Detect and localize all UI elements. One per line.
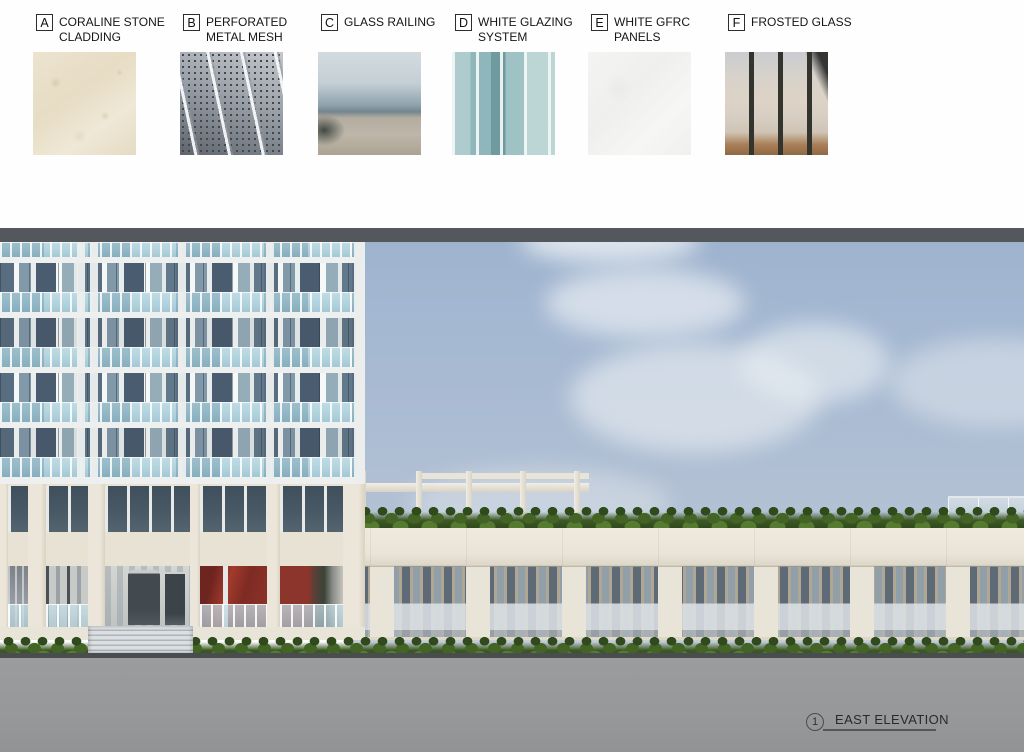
material-name: PERFORATED METAL MESH (206, 15, 302, 44)
material-swatch-b (180, 52, 283, 155)
material-name: WHITE GFRC PANELS (614, 15, 700, 44)
title-underline (823, 729, 936, 731)
mannequin-silhouette (165, 572, 185, 625)
view-number-bubble: 1 (806, 713, 824, 731)
cloud (890, 338, 1024, 428)
view-title-block: 1 EAST ELEVATION (806, 710, 966, 736)
pergola-beam (418, 473, 589, 479)
stone-pier (0, 484, 8, 640)
material-swatch-f (725, 52, 828, 155)
clerestory-glazing (280, 486, 343, 532)
material-name: WHITE GLAZING SYSTEM (478, 15, 584, 44)
perforated-mesh-bays (357, 566, 1024, 637)
stone-parapet (357, 528, 1024, 566)
tower-corner-pier (356, 242, 365, 487)
tower-piers (0, 242, 365, 487)
clerestory-glazing (105, 486, 190, 532)
storefront-screen-band (8, 604, 28, 629)
entry-glazing (105, 566, 190, 627)
stone-pier (28, 484, 46, 640)
clerestory-glazing (200, 486, 267, 532)
material-name: FROSTED GLASS (751, 15, 881, 30)
material-swatch-a (33, 52, 136, 155)
tower-facade (0, 242, 365, 487)
entry-steps (88, 626, 193, 653)
material-swatch-c (318, 52, 421, 155)
cloud (545, 268, 745, 338)
stone-pier (88, 484, 105, 640)
material-key-tag: E (591, 14, 608, 31)
image-top-edge-band (0, 228, 1024, 242)
east-elevation-rendering (0, 228, 1024, 752)
roof-planting (357, 504, 1024, 530)
view-title: EAST ELEVATION (835, 712, 949, 727)
material-swatch-d (452, 52, 555, 155)
elevation-sheet: ACORALINE STONE CLADDINGBPERFORATED META… (0, 0, 1024, 752)
mannequin-silhouette (128, 570, 160, 625)
material-key-tag: C (321, 14, 338, 31)
material-name: CORALINE STONE CLADDING (59, 15, 171, 44)
stone-pier (190, 484, 200, 640)
stone-pier (343, 484, 365, 640)
material-key-tag: B (183, 14, 200, 31)
material-key-tag: D (455, 14, 472, 31)
material-swatch-e (588, 52, 691, 155)
pergola-beam (359, 483, 589, 492)
material-key-tag: A (36, 14, 53, 31)
clerestory-glazing (46, 486, 88, 532)
cloud (740, 323, 890, 403)
stone-pier (267, 484, 280, 640)
material-key-tag: F (728, 14, 745, 31)
storefront-screen-band (200, 604, 267, 629)
storefront-screen-band (280, 604, 343, 629)
materials-legend: ACORALINE STONE CLADDINGBPERFORATED META… (0, 12, 1024, 162)
ground-plane (0, 653, 1024, 752)
tower-podium (0, 484, 365, 640)
podium-wing (357, 528, 1024, 640)
clerestory-glazing (8, 486, 28, 532)
storefront-screen-band (46, 604, 88, 629)
